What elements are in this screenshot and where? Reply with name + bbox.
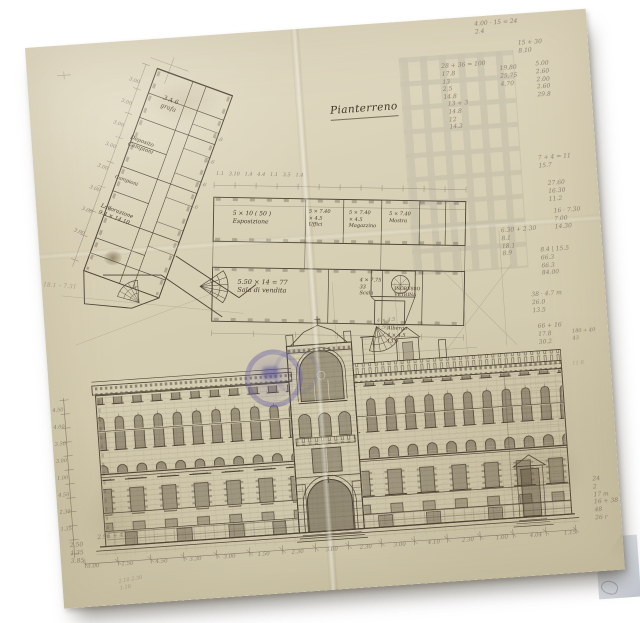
dim-value: 3.00: [223, 554, 236, 561]
drawing-sheet: Pianterreno 4.00 · 15 = 24 2.4 15 + 30 8…: [25, 9, 625, 609]
pencil-note: 11 B: [572, 360, 584, 367]
pencil-calc: 28 + 36 = 100 17.8 13 2.5 14.8: [441, 60, 488, 102]
dim-value: 4.10: [428, 539, 441, 546]
room-label-sala: 5.50 × 14 = 77 Sala di vendita: [237, 278, 287, 296]
pencil-calc: 19,80 25,75 4,70: [499, 64, 518, 89]
dim-value: 4.04: [530, 532, 543, 539]
scanned-architectural-drawing: Pianterreno 4.00 · 15 = 24 2.4 15 + 30 8…: [0, 0, 640, 623]
room-label-mostra: 5 × 7.40 Mostra: [389, 211, 411, 224]
dim-value: 1.50: [121, 561, 134, 568]
dim-value: 4.50: [155, 558, 168, 565]
dim-value: 2.30: [462, 537, 475, 544]
dim-value: 1.00: [496, 535, 509, 542]
dim-value: 3.30: [189, 556, 202, 563]
dim-value: 2.30: [291, 549, 304, 556]
room-label-scala: 4 × 7.75 33 Scala: [359, 277, 381, 297]
pencil-calc: 8.4 | 15.5 66.3 66.3 84.00: [540, 245, 571, 278]
dim-value: 3.00: [325, 546, 338, 553]
plan-junction: [102, 251, 258, 325]
pencil-calc: 66 + 16 17.8 30.2: [537, 321, 563, 346]
dim-value: 3.00: [87, 563, 100, 570]
room-label-esposizione: 5 × 10 ( 50 ) Esposizione: [233, 210, 272, 226]
dim-value: 1.50: [257, 551, 270, 558]
room-label-ingresso: INGRESSO VETRINA: [394, 287, 420, 299]
dim-value: 2.30: [359, 544, 372, 551]
pencil-calc: 4.00 · 15 = 24 2.4: [474, 18, 518, 37]
room-label-magazzino: 5 × 7.40 × 4.5 Magazzino: [349, 210, 377, 230]
pencil-calc: 180 + 40 43: [572, 327, 596, 342]
pencil-calc: 7 + 4 = 11 15.7: [538, 152, 572, 170]
pencil-calc: 5.00 2.60 2.00 2.60 29.8: [535, 60, 551, 100]
pencil-calc: 24 2 17 m 16 + 38 48 26 r: [592, 474, 619, 522]
pencil-calc: 16 · 7.30 7.00 14.30: [553, 206, 581, 231]
room-label-albergo: Albergo 4 × 4.5 13.0: [387, 325, 407, 345]
dim-value: 1.15: [564, 530, 577, 537]
pencil-calc: 27.60 16.30 11.2: [547, 179, 566, 204]
room-label-uffici: 5 × 7.40 × 4.5 Uffici: [309, 209, 331, 229]
pencil-calc: 6.30 + 2.30 8.1 18.1 8.9: [501, 225, 539, 259]
dim-value: 3.00: [394, 542, 407, 549]
pencil-calc: 2.50 1.35 3.85: [70, 541, 85, 565]
pencil-calc: 38 · 4.7 m 26.0 13.5: [531, 289, 563, 314]
pencil-calc: 13 + 3 14.8 12 14.3: [448, 99, 470, 132]
pencil-calc: 15 + 30 8.10: [518, 38, 543, 55]
